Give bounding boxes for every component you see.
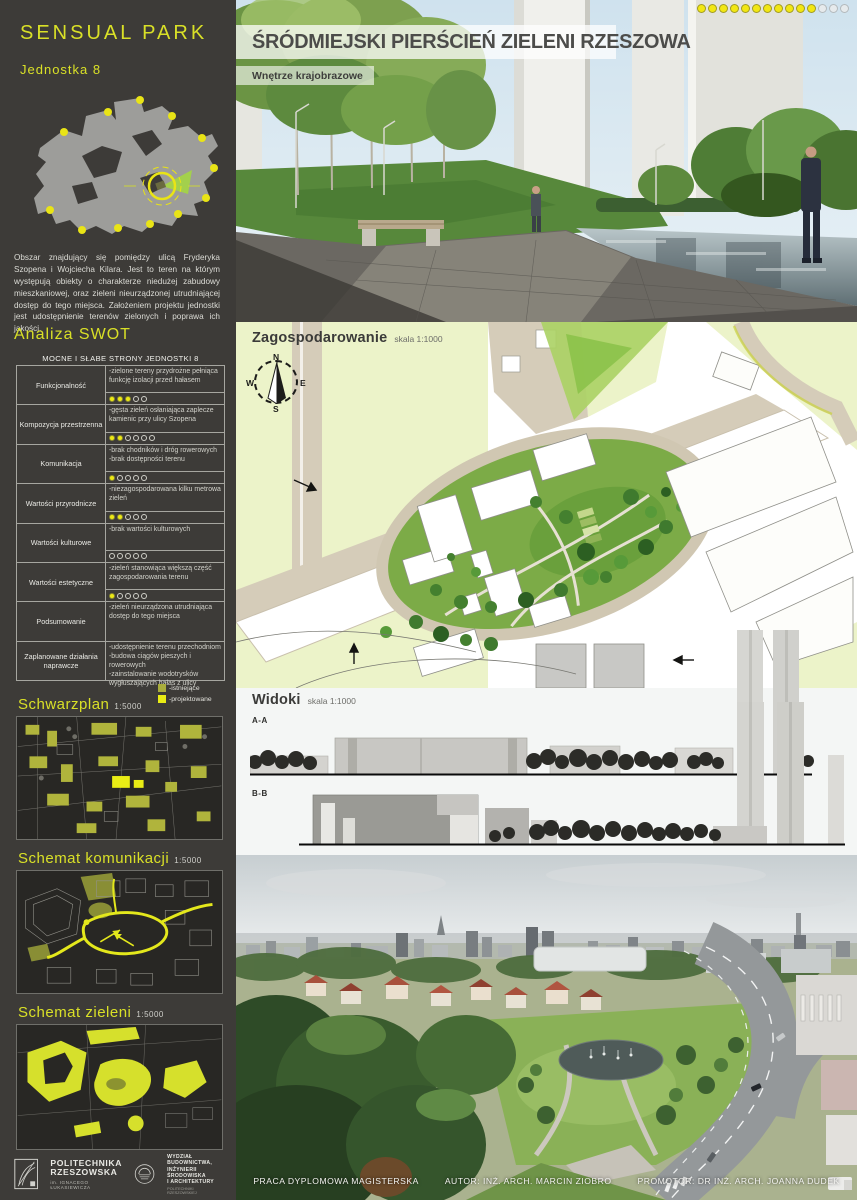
views-scale: skala 1:1000 <box>308 696 356 706</box>
rating-dot-icon <box>133 475 139 481</box>
progress-dot-icon <box>785 4 794 13</box>
board-subtitle-bar: Wnętrze krajobrazowe <box>236 66 374 85</box>
rating-dot-icon <box>133 553 139 559</box>
swot-row-description: -zieleń nieurządzona utrudniająca dostęp… <box>106 602 224 640</box>
rating-dot-icon <box>141 593 147 599</box>
progress-dot-icon <box>697 4 706 13</box>
footer-promoter: PROMOTOR: DR INŻ. ARCH. JOANNA DUDEK <box>638 1176 840 1186</box>
komunikacja-heading: Schemat komunikacji1:5000 <box>18 850 202 868</box>
fac-line: INŻYNIERII ŚRODOWISKA <box>167 1167 224 1180</box>
rating-dot-icon <box>125 475 131 481</box>
swot-table-row: Wartości kulturowe -brak wartości kultur… <box>17 524 224 563</box>
rating-dot-icon <box>109 514 115 520</box>
presentation-board: SENSUAL PARK Jednostka 8 <box>0 0 857 1200</box>
swot-table-row: Wartości estetyczne -zieleń stanowiąca w… <box>17 563 224 602</box>
map-title: Schemat zieleni <box>18 1004 131 1021</box>
progress-dot-icon <box>730 4 739 13</box>
map-scale: 1:5000 <box>136 1010 163 1019</box>
section-b-label: B-B <box>252 789 268 798</box>
rating-dot-icon <box>117 593 123 599</box>
rating-dot-icon <box>125 553 131 559</box>
rating-dot-icon <box>117 475 123 481</box>
section-a-label: A-A <box>252 716 268 725</box>
rating-dot-icon <box>109 435 115 441</box>
swot-table-row: Kompozycja przestrzenna -gęsta zieleń os… <box>17 405 224 444</box>
progress-dot-icon <box>763 4 772 13</box>
legend-label: -istniejące <box>169 685 200 692</box>
progress-dot-icon <box>752 4 761 13</box>
rating-dot-icon <box>133 514 139 520</box>
rating-dot-icon <box>109 396 115 402</box>
swot-table-row: Funkcjonalność -zielone tereny przydrożn… <box>17 366 224 405</box>
swot-row-description: -niezagospodarowana kilku metrowa zieleń <box>106 484 224 510</box>
footer-caption: PRACA DYPLOMOWA MAGISTERSKA AUTOR: INŻ. … <box>236 1176 857 1186</box>
progress-dot-icon <box>708 4 717 13</box>
swot-table-row: Komunikacja -brak chodników i dróg rower… <box>17 445 224 484</box>
swot-row-description: -zielone tereny przydrożne pełniąca funk… <box>106 366 224 392</box>
rating-dot-icon <box>125 514 131 520</box>
progress-dot-icon <box>774 4 783 13</box>
swot-table: Funkcjonalność -zielone tereny przydrożn… <box>16 365 225 681</box>
map-title: Schemat komunikacji <box>18 850 169 867</box>
rating-dot-icon <box>109 593 115 599</box>
section-b-drawing <box>285 700 845 846</box>
progress-dot-icon <box>741 4 750 13</box>
views-heading: Widoki skala 1:1000 <box>252 692 356 708</box>
fac-line-small: POLITECHNIKI RZESZOWSKIEJ <box>167 1187 224 1195</box>
schwarzplan-heading: Schwarzplan1:5000 <box>18 696 142 714</box>
rating-dot-icon <box>117 396 123 402</box>
board-subtitle: Wnętrze krajobrazowe <box>252 70 363 82</box>
swot-row-rating <box>106 589 224 601</box>
swot-row-label: Podsumowanie <box>17 602 106 640</box>
progress-dot-icon <box>818 4 827 13</box>
legend-label: -projektowane <box>169 696 212 703</box>
fac-line: I ARCHITEKTURY <box>167 1179 224 1185</box>
rating-dot-icon <box>125 435 131 441</box>
rating-dot-icon <box>125 396 131 402</box>
rating-dot-icon <box>125 593 131 599</box>
compass-icon: N E S W <box>248 354 306 412</box>
rating-dot-icon <box>117 514 123 520</box>
uni-line-small: im. IGNACEGO ŁUKASIEWICZA <box>50 1180 122 1190</box>
swot-table-row: Podsumowanie -zieleń nieurządzona utrudn… <box>17 602 224 641</box>
plan-scale: skala 1:1000 <box>394 334 442 344</box>
rating-dot-icon <box>141 514 147 520</box>
swot-row-rating <box>106 471 224 483</box>
aerial-photo <box>236 855 857 1200</box>
uni-line: RZESZOWSKA <box>50 1168 122 1178</box>
institution-logos: POLITECHNIKA RZESZOWSKA im. IGNACEGO ŁUK… <box>14 1154 224 1195</box>
swot-row-label: Komunikacja <box>17 445 106 483</box>
map-title: Schwarzplan <box>18 696 109 713</box>
board-title: ŚRÓDMIEJSKI PIERŚCIEŃ ZIELENI RZESZOWA <box>252 30 691 54</box>
rating-dot-icon <box>109 475 115 481</box>
plan-heading: Zagospodarowanie skala 1:1000 <box>252 330 443 346</box>
area-description: Obszar znajdujący się pomiędzy ulicą Fry… <box>14 252 220 335</box>
faculty-name: WYDZIAŁ BUDOWNICTWA, INŻYNIERII ŚRODOWIS… <box>167 1154 224 1195</box>
progress-dots <box>697 4 849 13</box>
politechnika-logo-icon <box>14 1155 38 1193</box>
swot-row-rating <box>106 511 224 523</box>
swot-table-title: MOCNE I SŁABE STRONY JEDNOSTKI 8 <box>16 354 225 363</box>
swot-table-row: Wartości przyrodnicze -niezagospodarowan… <box>17 484 224 523</box>
swot-row-rating <box>106 392 224 404</box>
rating-dot-icon <box>133 593 139 599</box>
legend-item-planned: -projektowane <box>158 695 212 703</box>
politechnika-name: POLITECHNIKA RZESZOWSKA im. IGNACEGO ŁUK… <box>50 1159 122 1191</box>
legend-swatch-existing-icon <box>158 684 166 692</box>
locator-map <box>12 86 224 242</box>
rating-dot-icon <box>133 396 139 402</box>
rating-dot-icon <box>141 475 147 481</box>
zielen-heading: Schemat zieleni1:5000 <box>18 1004 164 1022</box>
footer-work-type: PRACA DYPLOMOWA MAGISTERSKA <box>253 1176 419 1186</box>
progress-dot-icon <box>840 4 849 13</box>
plan-title: Zagospodarowanie <box>252 330 387 346</box>
rating-dot-icon <box>141 396 147 402</box>
footer-author: AUTOR: INŻ. ARCH. MARCIN ZIOBRO <box>445 1176 612 1186</box>
swot-row-rating <box>106 550 224 562</box>
rating-dot-icon <box>117 553 123 559</box>
swot-row-description: -brak wartości kulturowych <box>106 524 224 550</box>
swot-row-label: Kompozycja przestrzenna <box>17 405 106 443</box>
rating-dot-icon <box>141 435 147 441</box>
rating-dot-icon <box>133 435 139 441</box>
map-scale: 1:5000 <box>114 702 141 711</box>
rating-dot-icon <box>149 435 155 441</box>
zielen-map <box>16 1024 223 1150</box>
swot-heading: Analiza SWOT <box>14 326 131 344</box>
swot-row-label: Funkcjonalność <box>17 366 106 404</box>
legend-item-existing: -istniejące <box>158 684 212 692</box>
swot-row-description: -brak chodników i dróg rowerowych -brak … <box>106 445 224 471</box>
views-title: Widoki <box>252 692 301 708</box>
progress-dot-icon <box>719 4 728 13</box>
swot-row-description: -gęsta zieleń osłaniająca zaplecze kamie… <box>106 405 224 431</box>
legend-swatch-planned-icon <box>158 695 166 703</box>
progress-dot-icon <box>807 4 816 13</box>
swot-row-label: Wartości estetyczne <box>17 563 106 601</box>
komunikacja-map <box>16 870 223 994</box>
schwarzplan-map <box>16 716 223 840</box>
project-title: SENSUAL PARK <box>20 22 207 45</box>
swot-row-label: Wartości przyrodnicze <box>17 484 106 522</box>
board-title-bar: ŚRÓDMIEJSKI PIERŚCIEŃ ZIELENI RZESZOWA <box>236 25 616 59</box>
rating-dot-icon <box>109 553 115 559</box>
sidebar: SENSUAL PARK Jednostka 8 <box>0 0 236 1200</box>
swot-row-description: -zieleń stanowiąca większą część zagospo… <box>106 563 224 589</box>
progress-dot-icon <box>829 4 838 13</box>
map-legend: -istniejące -projektowane <box>158 684 212 703</box>
rating-dot-icon <box>117 435 123 441</box>
swot-row-label: Wartości kulturowe <box>17 524 106 562</box>
rating-dot-icon <box>141 553 147 559</box>
swot-row-label: Zaplanowane działania naprawcze <box>17 642 106 680</box>
swot-table-row: Zaplanowane działania naprawcze -udostęp… <box>17 642 224 680</box>
unit-subtitle: Jednostka 8 <box>20 62 101 77</box>
swot-row-rating <box>106 432 224 444</box>
faculty-logo-icon <box>134 1161 155 1187</box>
map-scale: 1:5000 <box>174 856 201 865</box>
progress-dot-icon <box>796 4 805 13</box>
